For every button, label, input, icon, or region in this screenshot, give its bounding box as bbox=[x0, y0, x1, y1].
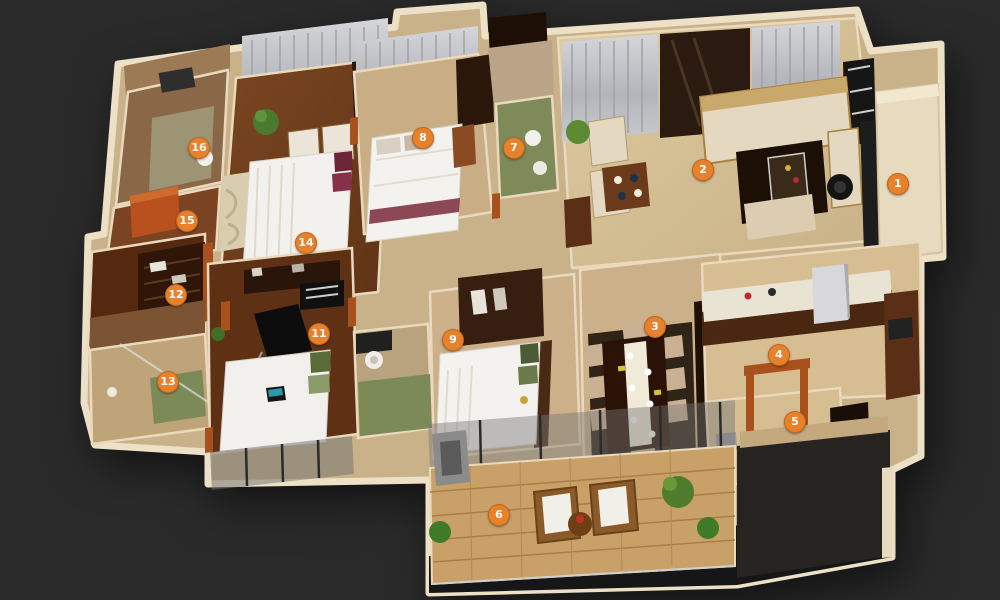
room-marker-13[interactable]: 13 bbox=[157, 371, 179, 393]
marker-layer: 123456789111213141516 bbox=[0, 0, 1000, 600]
floor-plan-scene: 123456789111213141516 bbox=[0, 0, 1000, 600]
room-marker-4[interactable]: 4 bbox=[768, 344, 790, 366]
room-marker-1[interactable]: 1 bbox=[887, 173, 909, 195]
room-marker-5[interactable]: 5 bbox=[784, 411, 806, 433]
room-marker-2[interactable]: 2 bbox=[692, 159, 714, 181]
room-marker-11[interactable]: 11 bbox=[308, 323, 330, 345]
room-marker-15[interactable]: 15 bbox=[176, 210, 198, 232]
room-marker-9[interactable]: 9 bbox=[442, 329, 464, 351]
room-marker-8[interactable]: 8 bbox=[412, 127, 434, 149]
room-marker-7[interactable]: 7 bbox=[503, 137, 525, 159]
room-marker-3[interactable]: 3 bbox=[644, 316, 666, 338]
room-marker-14[interactable]: 14 bbox=[295, 232, 317, 254]
room-marker-12[interactable]: 12 bbox=[165, 284, 187, 306]
room-marker-16[interactable]: 16 bbox=[188, 137, 210, 159]
room-marker-6[interactable]: 6 bbox=[488, 504, 510, 526]
